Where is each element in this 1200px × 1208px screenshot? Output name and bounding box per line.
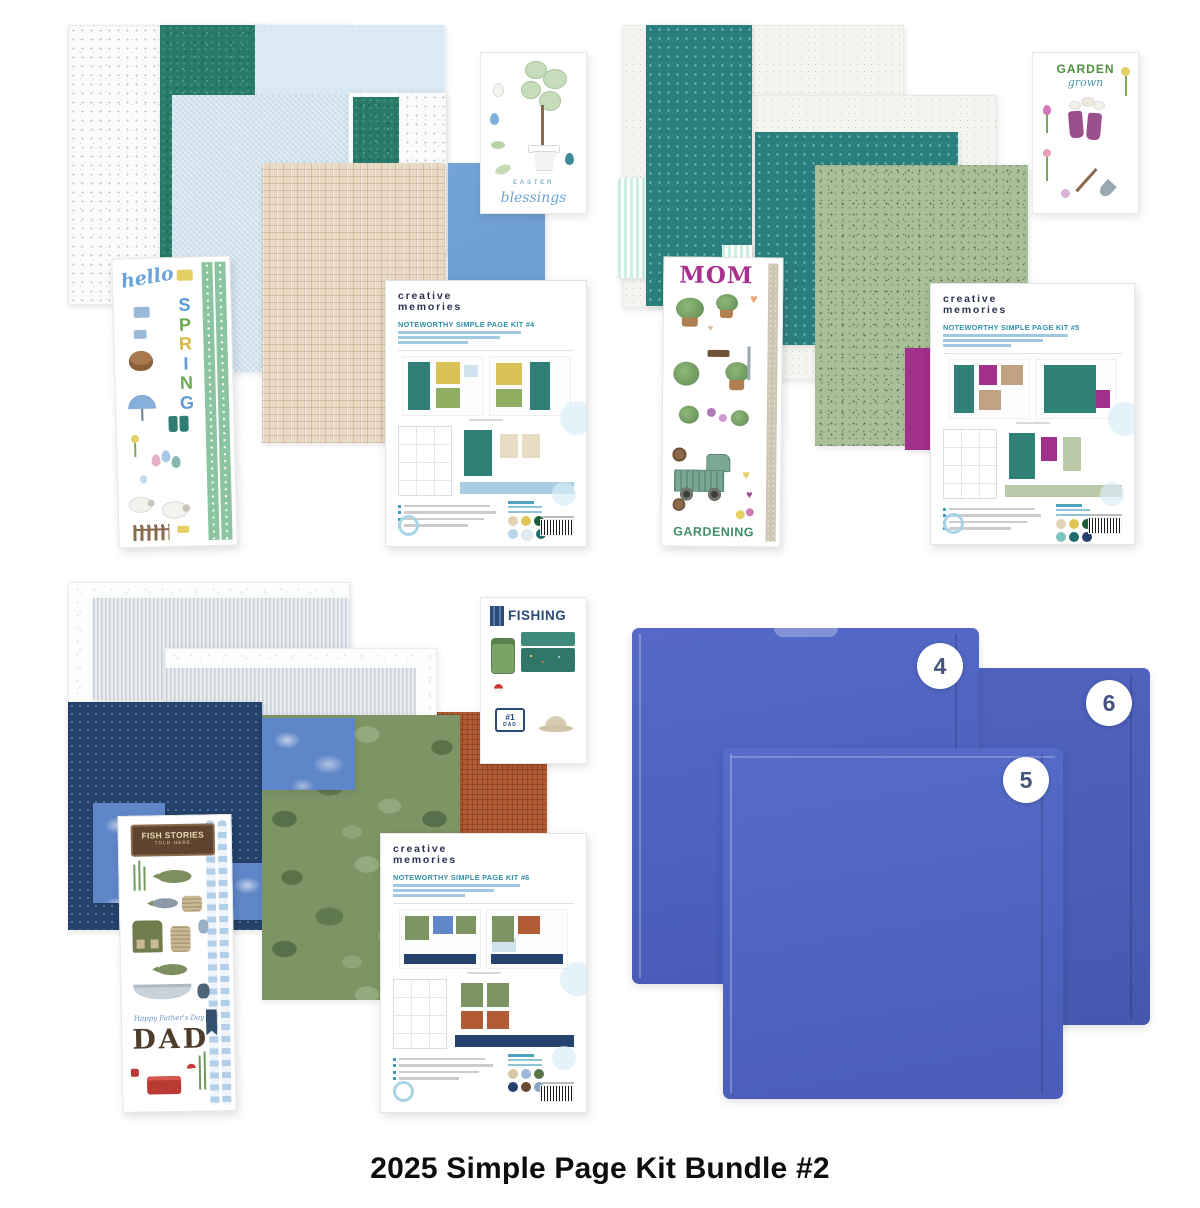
flower-icon [746,508,754,516]
plant-pot-icon [682,318,698,327]
color-swatch [508,1082,518,1092]
shovel-handle-icon [1075,168,1097,192]
flower-icon [1069,101,1081,110]
color-swatch [534,1069,544,1079]
brand-logo: creative memories [393,844,574,867]
thumb-notch [774,628,838,637]
paper-teal-patch [353,97,399,163]
color-swatch [1069,519,1079,529]
flower-icon [1061,189,1070,198]
bullet-line [393,889,494,892]
plate-number: #1 [497,712,523,722]
fishing-word: FISHING [508,608,566,623]
color-swatch [508,516,518,526]
tag-icon [131,1069,139,1077]
umbrella-icon [128,394,156,409]
fence-icon [133,524,169,541]
plant-icon [731,410,749,426]
badge-6: 6 [1086,680,1132,726]
spring-letter: R [172,334,199,354]
paper-mint-stripe [618,178,647,278]
color-swatch [508,1069,518,1079]
blessings-word: blessings [481,190,586,206]
fold-line [1041,754,1043,1093]
heart-icon [742,468,750,481]
plant-pot-icon [729,380,744,390]
flower-icon [707,408,716,417]
color-swatch [1056,519,1066,529]
pot-icon [531,151,558,171]
layout-sketch [398,426,452,496]
butterfly-icon [177,269,193,280]
daffodil-icon [1121,67,1130,76]
layout-sketch [943,429,997,499]
product-photo-thumbnails [393,909,574,969]
color-swatch [521,529,533,541]
color-swatch [1056,532,1066,542]
boat-icon [133,984,191,1000]
paper-pale-blue-dot [255,25,445,95]
brand-seal-icon [393,1081,414,1102]
barcode [540,1085,574,1102]
fathers-day-script: Happy Father's Day [134,1014,204,1023]
divider [943,353,1122,354]
barrel-icon [672,447,686,461]
kit4-title: NOTEWORTHY SIMPLE PAGE KIT #4 [398,320,574,329]
badge-5: 5 [1003,757,1049,803]
egg-icon [161,450,170,462]
brand-line2: memories [398,302,574,313]
caption-line [1016,422,1050,425]
color-swatch [1069,532,1079,542]
layout-spread-photo [1035,359,1117,419]
hello-spring-sticker-sheet: hello S P R I N G [111,255,238,548]
plant-icon [676,298,704,320]
tackle-box-lid-icon [521,632,575,646]
rain-boots-icon [168,416,190,433]
sign-line1: FISH STORIES [133,829,213,840]
fish-icon [152,898,178,908]
creel-basket-icon [170,926,190,952]
color-swatch [508,529,518,539]
bobber-icon [494,684,503,693]
barcode-number [542,516,574,518]
reed-icon [204,1052,207,1090]
floral-watermark-icon [560,962,586,996]
barcode [1088,517,1122,534]
reed-icon [133,865,135,891]
badge-4: 4 [917,643,963,689]
flower-stem-icon [1125,76,1127,96]
barcode-number [1090,514,1122,516]
tag-icon [177,526,189,533]
fish-stories-sign: FISH STORIES TOLD HERE [131,823,216,856]
floral-watermark-icon [552,482,576,506]
flower-stem-icon [1046,115,1048,133]
egg-icon [140,475,147,484]
fishing-tag-icon [490,606,504,626]
egg-icon [565,153,574,165]
plant-icon [679,406,699,424]
floral-watermark-icon [560,401,586,435]
lamb-icon [128,497,152,514]
product-photo-thumbnails [398,356,574,416]
leaf-icon [494,163,512,177]
fishing-sticker: FISHING #1 DAD [480,597,587,764]
spring-word: S P R I N G [171,295,200,413]
paper-water-texture [262,718,355,790]
tulip-icon [1043,105,1051,115]
plate-word: DAD [497,722,523,728]
fishing-vest-icon [132,920,163,953]
bullet-line [943,344,1011,347]
color-swatch [521,516,531,526]
kit-contents-photo [455,979,574,1049]
shovel-blade-icon [1097,179,1117,199]
reed-icon [143,867,145,891]
bullet-line [398,336,500,339]
divider [398,350,574,351]
brand-line2: memories [943,305,1122,316]
tackle-box-icon [521,648,575,672]
floral-watermark-icon [1108,402,1134,436]
plant-pot-icon [720,310,733,318]
spring-letter: N [173,373,200,393]
egg-icon [171,456,180,468]
mom-gardening-sticker-sheet: MOM GARDENING [660,256,783,547]
flower-icon [1093,101,1105,110]
kit6-title: NOTEWORTHY SIMPLE PAGE KIT #6 [393,873,574,882]
bullet-line [398,331,521,334]
garden-boot-icon [1086,112,1102,140]
bait-jar-icon [491,638,515,674]
lamb-icon [161,501,188,519]
basket-icon [129,351,154,372]
lure-icon [198,919,208,933]
wave-border-icon [218,820,232,1105]
truck-wheel-icon [708,488,721,501]
flower-icon [736,510,745,519]
barcode [540,519,574,536]
flower-stem-icon [1046,157,1048,181]
number-one-dad-plate: #1 DAD [495,708,525,732]
tree-trunk-icon [541,105,544,145]
flower-stem-icon [134,443,136,457]
spring-letter: G [174,393,201,413]
plant-icon [673,361,699,385]
fishing-hat-brim-icon [539,725,573,732]
floral-watermark-icon [552,1046,576,1070]
brand-line2: memories [393,855,574,866]
flower-icon [719,414,727,422]
fold-line [1130,674,1132,1019]
bullet-line [943,339,1043,342]
fish-icon [197,983,209,998]
flower-icon [131,435,139,443]
kit6-package: creative memories NOTEWORTHY SIMPLE PAGE… [380,833,587,1113]
floral-watermark-icon [1100,482,1124,506]
barcode-number [542,1082,574,1084]
garden-boot-icon [1068,110,1084,138]
product-photo-thumbnails [943,359,1122,419]
layout-spread-photo [486,909,568,969]
kit5-title: NOTEWORTHY SIMPLE PAGE KIT #5 [943,323,1122,332]
fold-line [639,634,641,978]
egg-icon [493,83,504,97]
color-swatch [521,1082,531,1092]
barrel-icon [673,498,686,511]
creel-basket-icon [182,896,202,912]
heart-icon [746,490,753,501]
product-collage: EASTER blessings hello S P R I N G [0,0,1200,1208]
dotted-border-icon [766,263,779,541]
fish-icon [157,964,187,976]
brand-logo: creative memories [398,291,574,314]
bullet-line [393,884,520,887]
butterfly-icon [134,307,150,318]
spring-letter: P [172,315,199,335]
easter-blessings-sticker: EASTER blessings [480,52,587,214]
brand-seal-icon [398,515,419,536]
reed-icon [138,861,141,891]
tree-foliage-icon [543,69,567,89]
layout-spread-photo [489,356,571,416]
fold-line [731,756,1055,758]
brand-seal-icon [943,513,964,534]
kit5-package: creative memories NOTEWORTHY SIMPLE PAGE… [930,283,1135,545]
flower-icon [1043,149,1051,157]
spring-letter: S [171,295,198,315]
egg-icon [490,113,499,125]
dad-fishing-sticker-sheet: FISH STORIES TOLD HERE Happy Father's Da… [117,814,236,1113]
heart-icon [708,324,713,333]
butterfly-icon [134,330,147,339]
watering-can-icon [747,346,750,380]
layout-sketch [393,979,447,1049]
fold-line [730,754,732,1093]
layout-spread-photo [399,909,481,969]
kit4-package: creative memories NOTEWORTHY SIMPLE PAGE… [385,280,587,547]
divider [393,903,574,904]
cooler-icon [147,1076,181,1095]
tree-foliage-icon [521,81,541,99]
caption-line [469,419,503,422]
reed-icon [199,1056,202,1090]
heart-icon [750,292,758,305]
garden-grown-sticker: GARDEN grown [1032,52,1139,214]
bullet-line [398,341,468,344]
fish-icon [157,870,191,884]
color-swatch [521,1069,531,1079]
bullet-line [943,334,1068,337]
mom-word: MOM [664,261,768,289]
bobber-icon [187,1064,196,1073]
easter-word: EASTER [481,179,586,186]
hello-script: hello [119,262,175,292]
brand-logo: creative memories [943,294,1122,317]
page-protector-pack-5 [723,748,1063,1099]
layout-spread-photo [948,359,1030,419]
caption-line [467,972,501,975]
egg-icon [151,454,160,466]
sign-icon [707,350,729,357]
bullet-line [393,894,465,897]
gardening-word: GARDENING [662,524,766,539]
dad-word: DAD [132,1023,209,1055]
leaf-icon [491,141,505,149]
layout-spread-photo [402,356,484,416]
spring-letter: I [173,354,200,374]
grown-word: grown [1033,76,1138,89]
page-title: 2025 Simple Page Kit Bundle #2 [0,1152,1200,1186]
